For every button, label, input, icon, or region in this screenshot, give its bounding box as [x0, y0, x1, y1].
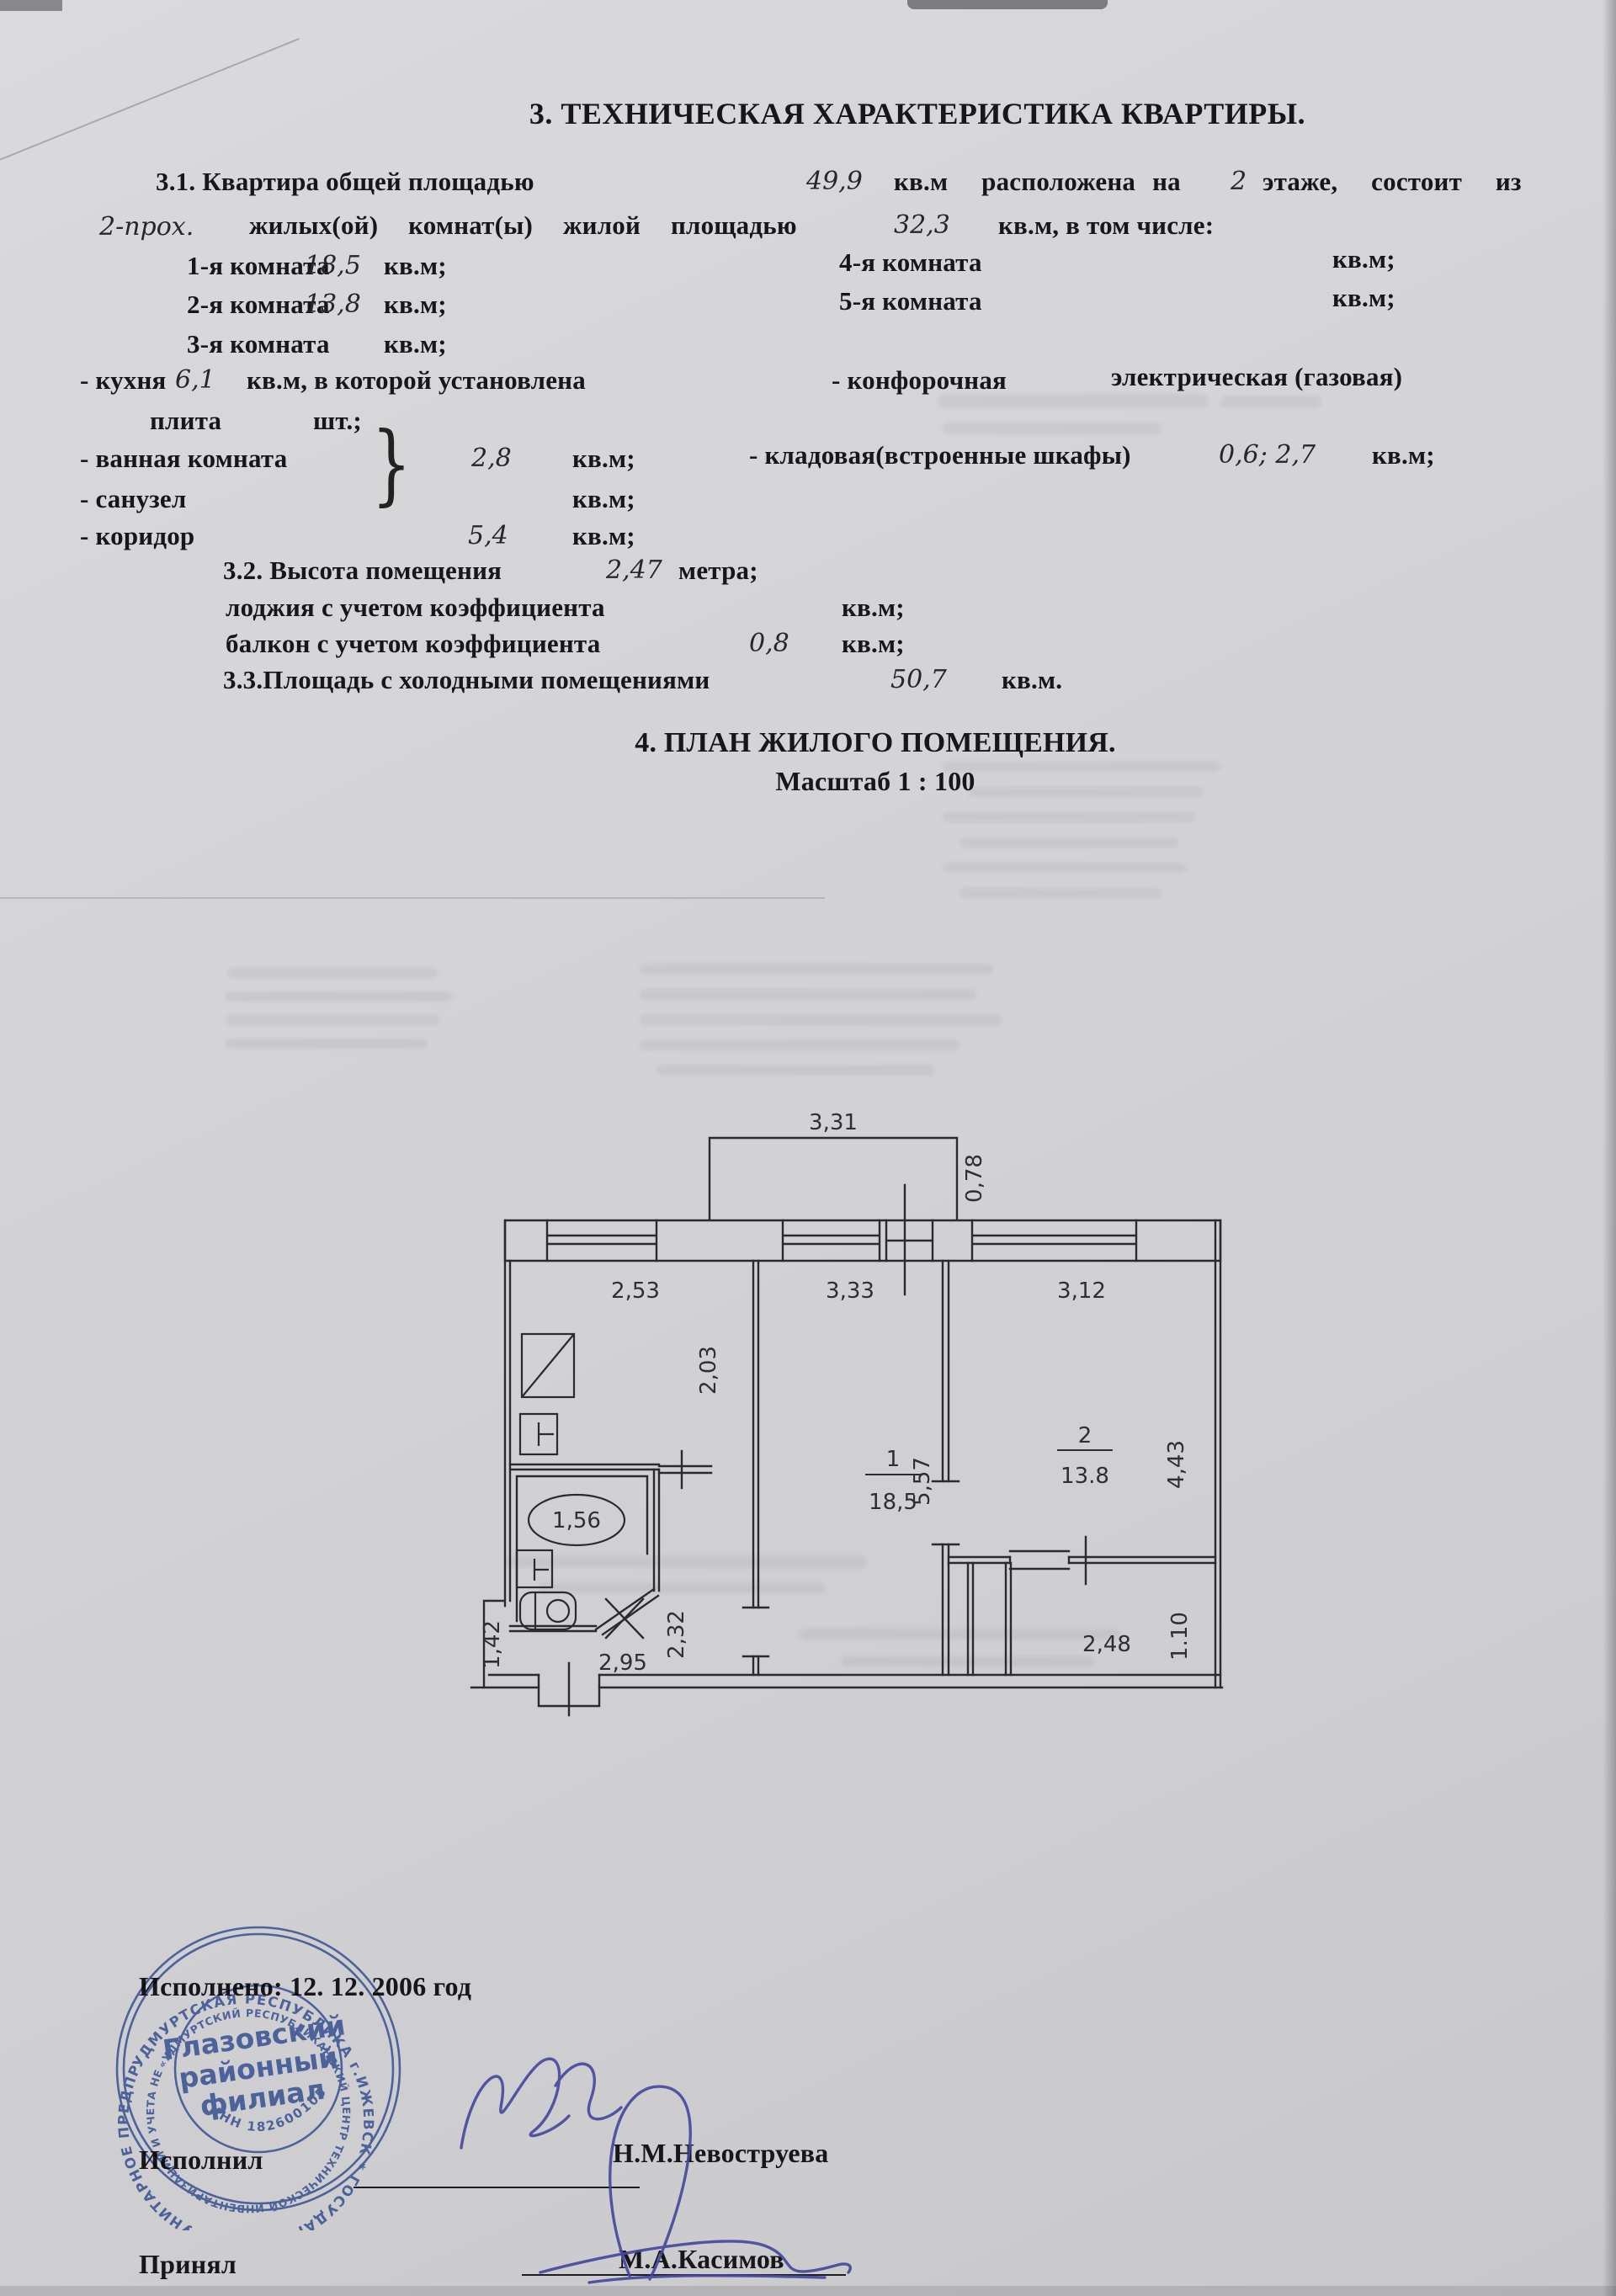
acceptor-signature	[589, 2276, 825, 2283]
executor-signature	[461, 2059, 621, 2148]
signatures-ink	[0, 0, 1616, 2296]
acceptor-signature	[540, 2241, 850, 2272]
scanned-document-page: 3. ТЕХНИЧЕСКАЯ ХАРАКТЕРИСТИКА КВАРТИРЫ. …	[0, 0, 1616, 2296]
